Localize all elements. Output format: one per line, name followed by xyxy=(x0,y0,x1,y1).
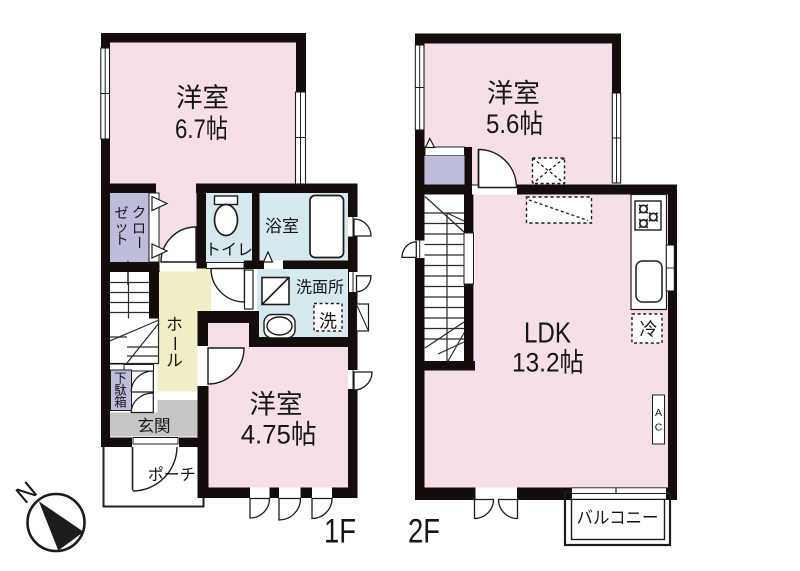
svg-text:C: C xyxy=(655,422,663,434)
svg-text:ロ: ロ xyxy=(132,221,146,237)
svg-text:箱: 箱 xyxy=(114,395,127,410)
svg-text:A: A xyxy=(655,407,662,419)
svg-text:トイレ: トイレ xyxy=(205,242,253,259)
svg-text:浴室: 浴室 xyxy=(265,217,299,236)
svg-text:ホ: ホ xyxy=(166,316,183,334)
svg-text:LDK: LDK xyxy=(524,318,572,350)
svg-text:4.75帖: 4.75帖 xyxy=(241,420,317,450)
svg-text:玄関: 玄関 xyxy=(138,417,171,436)
svg-text:洋室: 洋室 xyxy=(250,390,303,420)
svg-text:洋室: 洋室 xyxy=(487,79,540,109)
svg-text:洗: 洗 xyxy=(319,312,337,332)
svg-text:洗面所: 洗面所 xyxy=(296,279,344,297)
svg-text:5.6帖: 5.6帖 xyxy=(486,109,544,139)
svg-text:冷: 冷 xyxy=(640,320,658,340)
svg-text:ー: ー xyxy=(131,236,147,250)
svg-text:ー: ー xyxy=(165,335,183,352)
svg-text:ク: ク xyxy=(132,205,146,221)
svg-text:13.2帖: 13.2帖 xyxy=(512,348,584,378)
svg-text:ポーチ: ポーチ xyxy=(148,466,196,484)
svg-text:6.7帖: 6.7帖 xyxy=(175,114,228,144)
svg-text:洋室: 洋室 xyxy=(176,83,229,113)
svg-text:ル: ル xyxy=(166,352,183,370)
svg-text:ト: ト xyxy=(115,232,129,248)
svg-text:1F: 1F xyxy=(324,513,356,551)
svg-text:バルコニー: バルコニー xyxy=(577,509,659,528)
svg-text:2F: 2F xyxy=(408,513,440,551)
